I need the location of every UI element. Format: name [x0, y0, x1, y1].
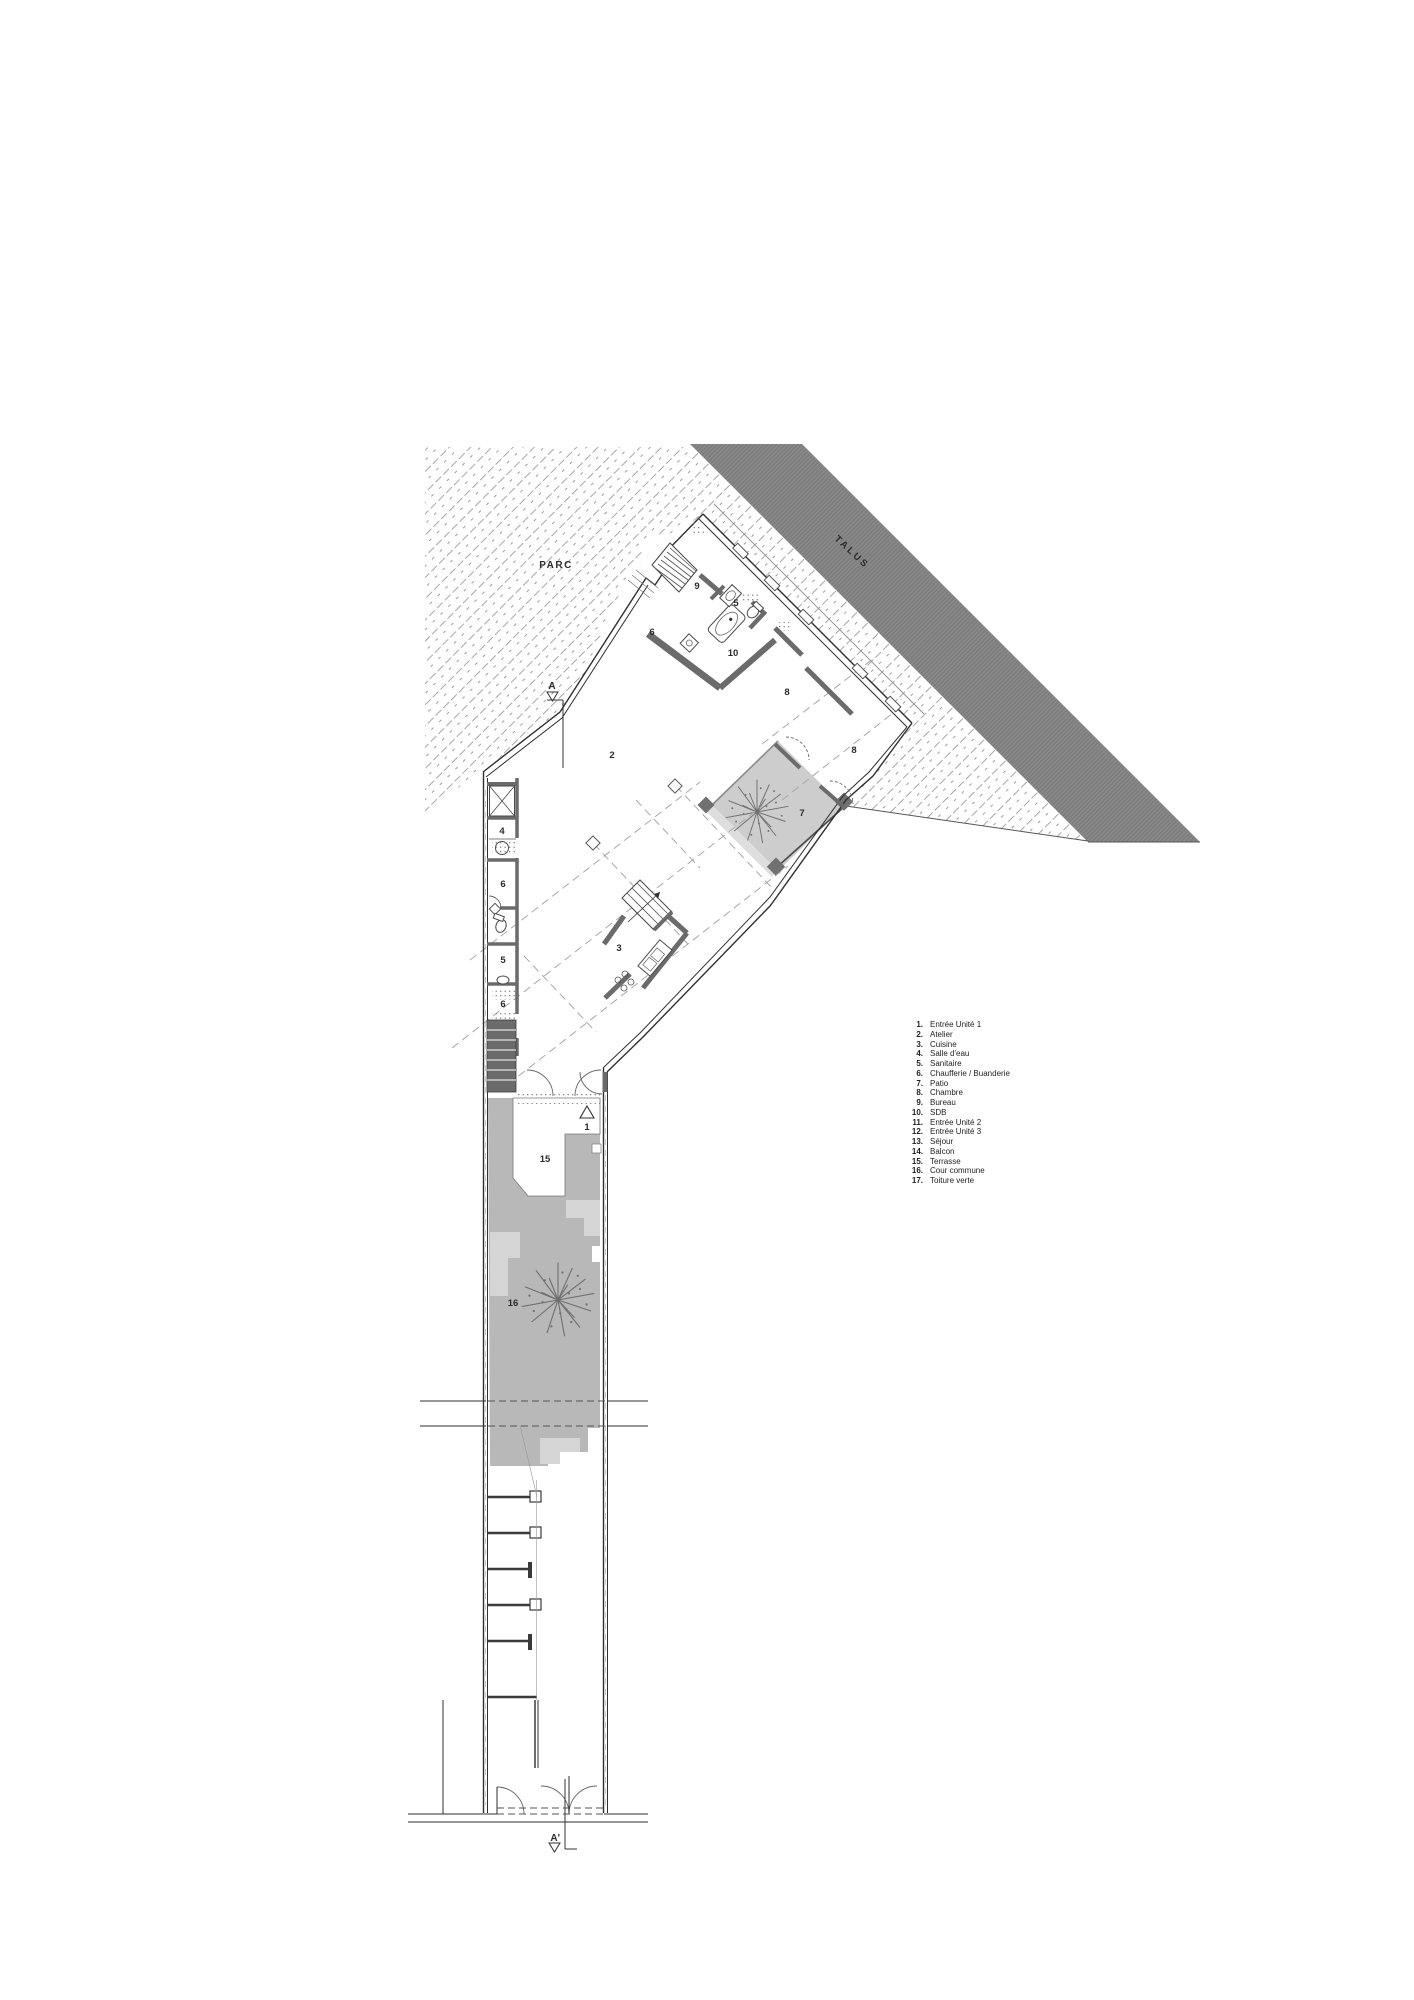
legend-item: 9.Bureau — [903, 1098, 1073, 1108]
parc-label: PARC — [539, 560, 573, 571]
room-label-cour: 16 — [508, 1298, 519, 1309]
shower-box — [490, 786, 515, 816]
legend-item: 2.Atelier — [903, 1030, 1073, 1040]
legend-item: 8.Chambre — [903, 1088, 1073, 1098]
legend-item: 6.Chaufferie / Buanderie — [903, 1069, 1073, 1079]
room-label-chaufferie-h: 6 — [649, 627, 654, 638]
room-label-patio: 7 — [799, 808, 804, 819]
section-label-a-prime: A' — [550, 1833, 560, 1844]
room-label-sanitaire: 5 — [500, 955, 506, 966]
stair-strip — [487, 1020, 516, 1092]
legend-item: 13.Séjour — [903, 1137, 1073, 1147]
legend: 1.Entrée Unité 1 2.Atelier 3.Cuisine 4.S… — [903, 1020, 1073, 1186]
legend-item: 11.Entrée Unité 2 — [903, 1118, 1073, 1128]
room-label-atelier: 2 — [609, 750, 614, 761]
section-label-a: A — [548, 681, 555, 692]
room-label-bureau: 9 — [694, 581, 699, 592]
legend-item: 1.Entrée Unité 1 — [903, 1020, 1073, 1030]
legend-item: 16.Cour commune — [903, 1166, 1073, 1176]
floor-plan-sheet: A A' PARC TALUS 9 5 6 10 8 8 2 7 4 6 5 6… — [0, 0, 1414, 2000]
room-label-chambre-2: 8 — [851, 745, 856, 756]
legend-item: 10.SDB — [903, 1108, 1073, 1118]
room-label-sdb: 10 — [728, 648, 739, 659]
room-label-chaufferie: 6 — [500, 879, 505, 890]
legend-item: 3.Cuisine — [903, 1040, 1073, 1050]
legend-item: 7.Patio — [903, 1079, 1073, 1089]
legend-item: 14.Balcon — [903, 1147, 1073, 1157]
room-label-terrasse: 15 — [540, 1154, 551, 1165]
room-label-sanitaire-h: 5 — [733, 598, 739, 609]
legend-item: 5.Sanitaire — [903, 1059, 1073, 1069]
legend-item: 12.Entrée Unité 3 — [903, 1127, 1073, 1137]
room-label-cuisine: 3 — [616, 943, 621, 954]
legend-item: 4.Salle d'eau — [903, 1049, 1073, 1059]
room-label-entree-1: 1 — [584, 1122, 590, 1133]
floor-plan-drawing: A A' PARC TALUS 9 5 6 10 8 8 2 7 4 6 5 6… — [0, 0, 1414, 2000]
legend-item: 17.Toiture verte — [903, 1176, 1073, 1186]
legend-item: 15.Terrasse — [903, 1157, 1073, 1167]
room-label-chambre-1: 8 — [784, 687, 789, 698]
basin-small — [497, 976, 509, 984]
room-label-salle-eau: 4 — [499, 826, 505, 837]
room-label-buanderie: 6 — [500, 999, 505, 1010]
